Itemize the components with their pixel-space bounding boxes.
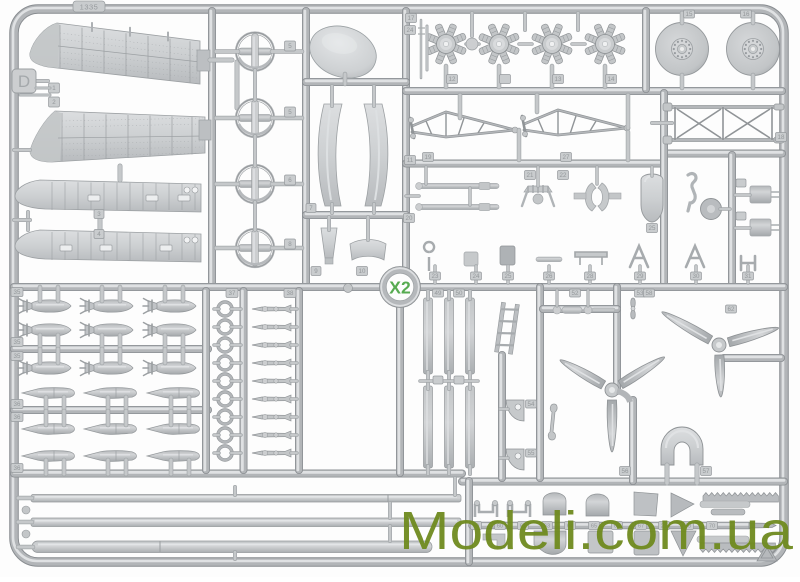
svg-text:19: 19 bbox=[425, 154, 432, 161]
svg-text:36: 36 bbox=[14, 414, 21, 421]
svg-text:35: 35 bbox=[14, 353, 21, 360]
svg-text:53: 53 bbox=[637, 290, 644, 297]
svg-text:X2: X2 bbox=[389, 278, 411, 298]
svg-text:15: 15 bbox=[686, 11, 693, 18]
svg-text:13: 13 bbox=[555, 76, 562, 83]
svg-text:28: 28 bbox=[587, 273, 594, 280]
svg-text:1335: 1335 bbox=[80, 3, 99, 12]
svg-text:26: 26 bbox=[546, 273, 553, 280]
svg-text:38: 38 bbox=[287, 290, 294, 297]
svg-text:11: 11 bbox=[407, 157, 414, 164]
svg-text:D: D bbox=[18, 72, 30, 91]
svg-text:5: 5 bbox=[288, 109, 292, 116]
svg-text:7: 7 bbox=[309, 205, 313, 212]
svg-text:27: 27 bbox=[563, 154, 570, 161]
svg-text:35: 35 bbox=[14, 339, 21, 346]
svg-text:57: 57 bbox=[703, 468, 710, 475]
svg-text:24: 24 bbox=[407, 27, 414, 34]
svg-text:49: 49 bbox=[435, 290, 442, 297]
svg-text:10: 10 bbox=[359, 268, 366, 275]
svg-text:22: 22 bbox=[560, 172, 567, 179]
svg-text:25: 25 bbox=[649, 225, 656, 232]
svg-text:12: 12 bbox=[449, 76, 456, 83]
svg-text:14: 14 bbox=[608, 76, 615, 83]
svg-text:21: 21 bbox=[527, 172, 534, 179]
svg-text:54: 54 bbox=[528, 401, 535, 408]
svg-text:3: 3 bbox=[97, 211, 101, 218]
svg-text:29: 29 bbox=[637, 273, 644, 280]
svg-text:5: 5 bbox=[288, 43, 292, 50]
svg-text:18: 18 bbox=[778, 134, 785, 141]
svg-text:31: 31 bbox=[745, 273, 752, 280]
svg-text:52: 52 bbox=[572, 290, 579, 297]
svg-text:58: 58 bbox=[646, 290, 653, 297]
svg-text:2: 2 bbox=[52, 99, 56, 106]
svg-text:50: 50 bbox=[456, 290, 463, 297]
svg-text:35: 35 bbox=[14, 289, 21, 296]
svg-text:20: 20 bbox=[406, 215, 413, 222]
svg-text:56: 56 bbox=[622, 468, 629, 475]
svg-text:36: 36 bbox=[14, 465, 21, 472]
svg-text:62: 62 bbox=[728, 306, 735, 313]
svg-text:9: 9 bbox=[314, 268, 318, 275]
svg-text:Modeli.com.ua: Modeli.com.ua bbox=[399, 501, 794, 561]
svg-text:16: 16 bbox=[743, 11, 750, 18]
svg-text:24: 24 bbox=[473, 273, 480, 280]
svg-text:30: 30 bbox=[693, 273, 700, 280]
svg-text:55: 55 bbox=[528, 450, 535, 457]
svg-text:37: 37 bbox=[229, 290, 236, 297]
svg-text:36: 36 bbox=[14, 401, 21, 408]
svg-text:17: 17 bbox=[408, 15, 415, 22]
svg-text:23: 23 bbox=[432, 273, 439, 280]
svg-text:4: 4 bbox=[97, 231, 101, 238]
svg-text:8: 8 bbox=[288, 241, 292, 248]
svg-text:6: 6 bbox=[288, 177, 292, 184]
svg-text:1: 1 bbox=[52, 85, 56, 92]
svg-text:25: 25 bbox=[505, 273, 512, 280]
